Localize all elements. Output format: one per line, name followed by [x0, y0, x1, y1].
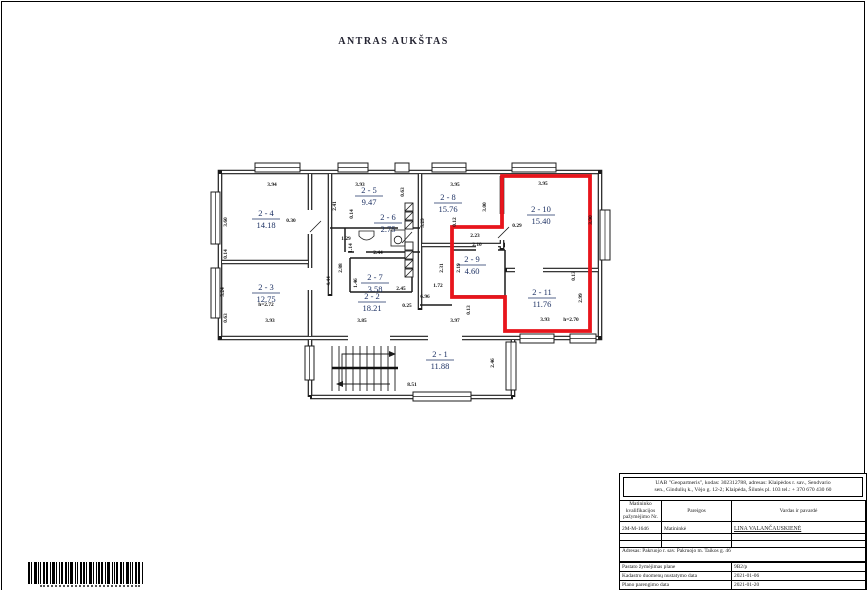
svg-text:0.25: 0.25 — [402, 303, 412, 309]
svg-text:2.46: 2.46 — [490, 358, 496, 368]
svg-text:14.18: 14.18 — [256, 220, 275, 230]
svg-text:3.00: 3.00 — [482, 202, 488, 212]
svg-text:2.88: 2.88 — [338, 263, 344, 273]
svg-text:2 - 4: 2 - 4 — [258, 208, 274, 218]
svg-text:2 - 6: 2 - 6 — [380, 212, 396, 222]
info-value: 2021-01-06 — [732, 572, 866, 581]
surveyor-name: LINA VALANČAUSKIENĖ — [732, 522, 866, 534]
svg-text:2.19: 2.19 — [456, 263, 462, 273]
svg-text:2.23: 2.23 — [470, 233, 480, 239]
info-value: 2021-01-20 — [732, 581, 866, 590]
barcode-digits — [40, 585, 140, 587]
svg-text:0.13: 0.13 — [571, 271, 577, 281]
svg-text:0.30: 0.30 — [286, 218, 296, 224]
svg-text:9.47: 9.47 — [362, 197, 377, 207]
svg-text:1.46: 1.46 — [353, 278, 359, 288]
svg-text:2 - 10: 2 - 10 — [531, 204, 551, 214]
svg-text:6.96: 6.96 — [420, 294, 430, 300]
svg-text:2 - 11: 2 - 11 — [532, 287, 552, 297]
svg-text:0.63: 0.63 — [223, 313, 229, 323]
svg-text:0.14: 0.14 — [223, 249, 229, 259]
info-label: Plano parengimo data — [620, 581, 732, 590]
svg-text:3.24: 3.24 — [220, 287, 226, 297]
info-label: Pastato žymėjimas plane — [620, 563, 732, 572]
svg-text:2 - 1: 2 - 1 — [432, 349, 448, 359]
svg-text:0.14: 0.14 — [349, 209, 355, 219]
svg-text:3.60: 3.60 — [223, 217, 229, 227]
svg-text:h=2.72: h=2.72 — [258, 302, 274, 308]
svg-text:3.85: 3.85 — [357, 318, 367, 324]
company-info: UAB "Geopartneris", kodas: 302312788, ad… — [623, 477, 863, 497]
plan-info-table: Pastato žymėjimas plane 9B2/p Kadastro d… — [619, 562, 866, 590]
info-label: Kadastro duomenų nustatymo data — [620, 572, 732, 581]
washbasin-icon — [359, 231, 374, 240]
svg-text:0.12: 0.12 — [452, 217, 458, 227]
header-position: Pareigos — [662, 500, 732, 521]
svg-text:3.93: 3.93 — [265, 318, 275, 324]
company-line1: UAB "Geopartneris", kodas: 302312788, ad… — [655, 480, 830, 486]
barcode — [28, 562, 150, 584]
svg-text:1.72: 1.72 — [433, 283, 443, 289]
header-certificate: Matininko kvalifikacijos pažymėjimo Nr. — [620, 500, 662, 521]
svg-text:3.97: 3.97 — [450, 318, 460, 324]
info-value: 9B2/p — [732, 563, 866, 572]
door-openings — [306, 210, 543, 343]
svg-text:3.90: 3.90 — [588, 215, 594, 225]
svg-text:2 - 7: 2 - 7 — [367, 272, 383, 282]
title-block: UAB "Geopartneris", kodas: 302312788, ad… — [619, 473, 867, 590]
svg-text:2.99: 2.99 — [578, 293, 584, 303]
svg-text:5.29: 5.29 — [420, 218, 426, 228]
svg-text:1.29: 1.29 — [341, 236, 351, 242]
svg-text:3.95: 3.95 — [450, 182, 460, 188]
svg-text:15.76: 15.76 — [438, 204, 457, 214]
svg-text:3.94: 3.94 — [267, 182, 277, 188]
svg-text:3.58: 3.58 — [368, 284, 383, 294]
svg-text:4.44: 4.44 — [326, 276, 332, 286]
svg-text:2.31: 2.31 — [439, 263, 445, 273]
svg-text:8.51: 8.51 — [407, 382, 417, 388]
svg-text:0.29: 0.29 — [512, 223, 522, 229]
document-page: ANTRAS AUKŠTAS — [0, 0, 867, 590]
svg-text:2.75: 2.75 — [381, 224, 396, 234]
svg-text:h=2.70: h=2.70 — [563, 317, 579, 323]
svg-text:2.10: 2.10 — [472, 242, 482, 248]
svg-text:2.41: 2.41 — [332, 201, 338, 211]
svg-text:0.63: 0.63 — [400, 187, 406, 197]
svg-text:2.44: 2.44 — [373, 250, 383, 256]
surveyor-table: Matininko kvalifikacijos pažymėjimo Nr. … — [619, 500, 866, 562]
svg-text:3.93: 3.93 — [355, 182, 365, 188]
svg-text:3.93: 3.93 — [540, 317, 550, 323]
svg-text:2.45: 2.45 — [396, 286, 406, 292]
certificate-no: 2M-M-1646 — [620, 522, 662, 534]
svg-text:11.88: 11.88 — [431, 361, 450, 371]
staircase — [332, 346, 398, 391]
company-line2: sen., Gindulių k., Vėjo g. 12-2; Klaipėd… — [655, 487, 832, 493]
svg-text:15.40: 15.40 — [531, 216, 550, 226]
header-name: Vardas ir pavardė — [732, 500, 866, 521]
svg-text:0.13: 0.13 — [466, 305, 472, 315]
svg-text:2 - 3: 2 - 3 — [258, 282, 274, 292]
flue-shafts — [405, 203, 413, 277]
svg-text:18.21: 18.21 — [362, 303, 381, 313]
svg-text:3.95: 3.95 — [538, 181, 548, 187]
object-address: Adresas: Pakruojo r. sav. Pakruojo m. Ta… — [620, 548, 866, 562]
svg-text:11.76: 11.76 — [533, 299, 552, 309]
svg-text:1.14: 1.14 — [348, 243, 354, 253]
svg-text:2 - 8: 2 - 8 — [440, 192, 456, 202]
position: Matininkė — [662, 522, 732, 534]
svg-text:4.60: 4.60 — [465, 266, 480, 276]
svg-text:2 - 9: 2 - 9 — [464, 254, 480, 264]
